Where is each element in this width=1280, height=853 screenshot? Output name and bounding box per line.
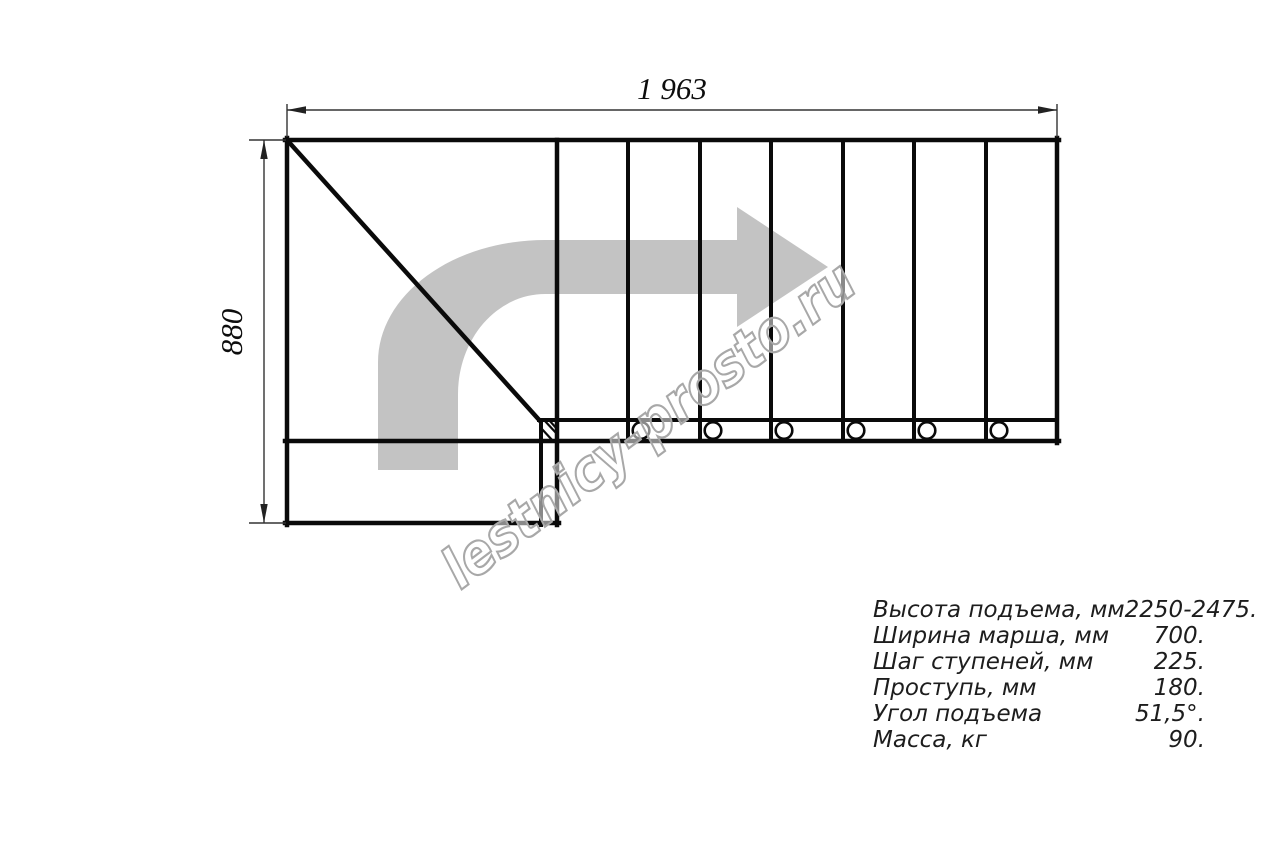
dimension-arrow-left-icon xyxy=(287,106,306,114)
height-dimension-label: 880 xyxy=(214,308,249,355)
spec-label: Масса, кг xyxy=(873,727,987,753)
width-dimension: 1 963 xyxy=(287,71,1057,137)
spec-row: Шаг ступеней, мм 225. xyxy=(873,649,1205,675)
dimension-arrow-up-icon xyxy=(260,140,267,159)
spec-value: 2250-2475. xyxy=(1125,597,1258,623)
spec-label: Ширина марша, мм xyxy=(873,623,1109,649)
height-dimension: 880 xyxy=(214,140,286,523)
spec-row: Масса, кг 90. xyxy=(873,727,1205,753)
spec-label: Проступь, мм xyxy=(873,675,1037,701)
dimension-arrow-right-icon xyxy=(1038,106,1057,114)
spec-label: Шаг ступеней, мм xyxy=(873,649,1093,675)
hatch-marks xyxy=(541,420,557,441)
stair-drawing-page: 1 963 880 lestnicy-prosto.ru Высота подъ… xyxy=(0,0,1280,853)
spec-row: Высота подъема, мм 2250-2475. xyxy=(873,597,1205,623)
spec-label: Угол подъема xyxy=(873,701,1042,727)
spec-value: 700. xyxy=(1154,623,1205,649)
dimension-arrow-down-icon xyxy=(260,504,267,523)
width-dimension-label: 1 963 xyxy=(637,71,707,106)
spec-value: 180. xyxy=(1154,675,1205,701)
spec-value: 225. xyxy=(1154,649,1205,675)
spec-value: 90. xyxy=(1168,727,1205,753)
spec-row: Угол подъема 51,5°. xyxy=(873,701,1205,727)
spec-row: Проступь, мм 180. xyxy=(873,675,1205,701)
spec-label: Высота подъема, мм xyxy=(873,597,1125,623)
spec-row: Ширина марша, мм 700. xyxy=(873,623,1205,649)
spec-table: Высота подъема, мм 2250-2475. Ширина мар… xyxy=(873,597,1205,753)
spec-value: 51,5°. xyxy=(1135,701,1205,727)
